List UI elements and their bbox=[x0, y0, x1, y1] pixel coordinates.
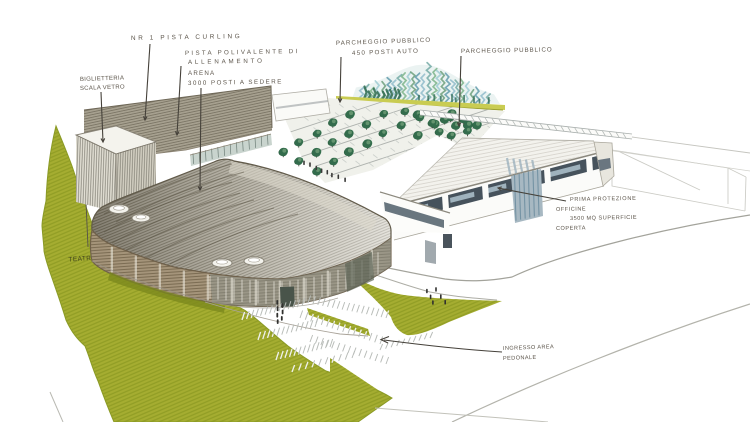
svg-text:ALLENAMENTO: ALLENAMENTO bbox=[188, 58, 265, 66]
svg-text:PRIMA PROTEZIONE: PRIMA PROTEZIONE bbox=[570, 196, 637, 203]
svg-text:3500 MQ SUPERFICIE: 3500 MQ SUPERFICIE bbox=[570, 215, 637, 222]
svg-text:ARENA: ARENA bbox=[188, 70, 215, 77]
svg-text:COPERTA: COPERTA bbox=[556, 225, 586, 232]
svg-text:PEDONALE: PEDONALE bbox=[503, 355, 537, 362]
svg-text:OFFICINE: OFFICINE bbox=[556, 206, 586, 213]
